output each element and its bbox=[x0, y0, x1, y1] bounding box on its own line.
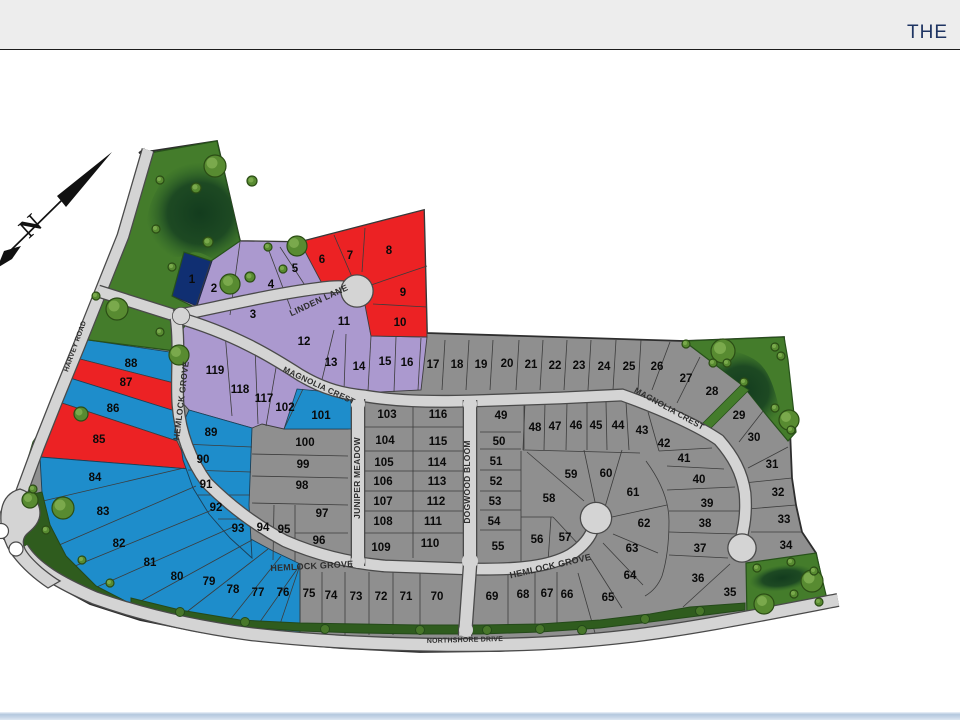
svg-text:77: 77 bbox=[252, 587, 265, 599]
svg-text:86: 86 bbox=[107, 403, 120, 415]
svg-text:10: 10 bbox=[394, 317, 407, 329]
svg-text:92: 92 bbox=[210, 502, 223, 514]
svg-text:60: 60 bbox=[600, 468, 613, 480]
svg-text:66: 66 bbox=[561, 589, 574, 601]
svg-text:42: 42 bbox=[658, 438, 671, 450]
svg-text:33: 33 bbox=[778, 514, 791, 526]
svg-text:5: 5 bbox=[292, 263, 299, 275]
svg-text:74: 74 bbox=[325, 590, 338, 602]
svg-text:21: 21 bbox=[525, 359, 538, 371]
svg-text:45: 45 bbox=[590, 420, 603, 432]
svg-text:94: 94 bbox=[257, 522, 270, 534]
svg-text:11: 11 bbox=[338, 316, 351, 328]
svg-text:32: 32 bbox=[772, 487, 785, 499]
svg-text:23: 23 bbox=[573, 360, 586, 372]
svg-text:53: 53 bbox=[489, 496, 502, 508]
svg-text:54: 54 bbox=[488, 516, 501, 528]
svg-text:114: 114 bbox=[428, 457, 447, 469]
svg-text:78: 78 bbox=[227, 584, 240, 596]
svg-text:79: 79 bbox=[203, 576, 216, 588]
svg-text:113: 113 bbox=[428, 476, 447, 488]
svg-text:115: 115 bbox=[429, 436, 448, 448]
svg-text:63: 63 bbox=[626, 543, 639, 555]
svg-text:107: 107 bbox=[373, 496, 392, 508]
svg-text:71: 71 bbox=[400, 591, 413, 603]
svg-text:117: 117 bbox=[255, 393, 274, 405]
svg-text:70: 70 bbox=[431, 591, 444, 603]
svg-text:98: 98 bbox=[296, 480, 309, 492]
svg-text:80: 80 bbox=[171, 571, 184, 583]
svg-text:89: 89 bbox=[205, 427, 218, 439]
svg-text:48: 48 bbox=[529, 422, 542, 434]
svg-text:35: 35 bbox=[724, 587, 737, 599]
svg-text:119: 119 bbox=[206, 365, 225, 377]
svg-text:72: 72 bbox=[375, 591, 388, 603]
svg-text:26: 26 bbox=[651, 361, 664, 373]
svg-text:1: 1 bbox=[189, 274, 196, 286]
svg-text:15: 15 bbox=[379, 356, 392, 368]
svg-text:87: 87 bbox=[120, 377, 133, 389]
svg-text:JUNIPER MEADOW: JUNIPER MEADOW bbox=[352, 436, 362, 518]
svg-text:39: 39 bbox=[701, 498, 714, 510]
svg-text:24: 24 bbox=[598, 361, 611, 373]
svg-text:16: 16 bbox=[401, 357, 414, 369]
svg-text:3: 3 bbox=[250, 309, 256, 321]
svg-text:22: 22 bbox=[549, 360, 562, 372]
svg-text:40: 40 bbox=[693, 474, 706, 486]
svg-text:64: 64 bbox=[624, 570, 637, 582]
svg-text:105: 105 bbox=[374, 457, 394, 469]
svg-text:96: 96 bbox=[313, 535, 326, 547]
svg-text:61: 61 bbox=[627, 487, 640, 499]
svg-text:51: 51 bbox=[490, 456, 503, 468]
svg-text:44: 44 bbox=[612, 420, 625, 432]
svg-text:7: 7 bbox=[347, 250, 353, 262]
svg-text:103: 103 bbox=[377, 409, 396, 421]
svg-text:43: 43 bbox=[636, 425, 649, 437]
svg-text:109: 109 bbox=[371, 542, 390, 554]
svg-text:100: 100 bbox=[295, 437, 314, 449]
svg-text:56: 56 bbox=[531, 534, 544, 546]
svg-text:99: 99 bbox=[297, 459, 310, 471]
svg-text:58: 58 bbox=[543, 493, 556, 505]
svg-text:47: 47 bbox=[549, 421, 562, 433]
svg-text:14: 14 bbox=[353, 361, 366, 373]
svg-text:116: 116 bbox=[429, 409, 448, 421]
svg-text:106: 106 bbox=[373, 476, 392, 488]
svg-text:112: 112 bbox=[427, 496, 446, 508]
svg-text:104: 104 bbox=[375, 435, 395, 447]
svg-text:12: 12 bbox=[298, 336, 311, 348]
svg-text:20: 20 bbox=[501, 358, 514, 370]
svg-text:83: 83 bbox=[97, 506, 110, 518]
svg-text:81: 81 bbox=[144, 557, 157, 569]
svg-text:4: 4 bbox=[268, 279, 275, 291]
svg-text:6: 6 bbox=[319, 254, 325, 266]
svg-text:2: 2 bbox=[211, 283, 217, 295]
svg-text:34: 34 bbox=[780, 540, 793, 552]
svg-text:DOGWOOD BLOOM: DOGWOOD BLOOM bbox=[462, 440, 472, 523]
svg-text:49: 49 bbox=[495, 410, 508, 422]
svg-text:59: 59 bbox=[565, 469, 578, 481]
svg-text:62: 62 bbox=[638, 518, 651, 530]
svg-text:37: 37 bbox=[694, 543, 707, 555]
svg-text:68: 68 bbox=[517, 589, 530, 601]
svg-text:19: 19 bbox=[475, 359, 488, 371]
svg-text:118: 118 bbox=[231, 384, 250, 396]
svg-text:73: 73 bbox=[350, 591, 363, 603]
svg-text:102: 102 bbox=[275, 402, 294, 414]
svg-text:57: 57 bbox=[559, 532, 572, 544]
svg-text:108: 108 bbox=[373, 516, 393, 528]
svg-text:41: 41 bbox=[678, 453, 691, 465]
svg-text:88: 88 bbox=[125, 358, 138, 370]
svg-text:N: N bbox=[13, 208, 48, 244]
svg-text:52: 52 bbox=[490, 476, 503, 488]
svg-text:31: 31 bbox=[766, 459, 779, 471]
svg-text:110: 110 bbox=[421, 538, 440, 550]
svg-text:55: 55 bbox=[492, 541, 505, 553]
svg-text:93: 93 bbox=[232, 523, 245, 535]
svg-text:91: 91 bbox=[200, 479, 213, 491]
svg-text:50: 50 bbox=[493, 436, 506, 448]
svg-text:67: 67 bbox=[541, 588, 554, 600]
svg-text:82: 82 bbox=[113, 538, 126, 550]
svg-text:8: 8 bbox=[386, 245, 393, 257]
svg-text:9: 9 bbox=[400, 287, 406, 299]
svg-text:36: 36 bbox=[692, 573, 705, 585]
svg-text:38: 38 bbox=[699, 518, 712, 530]
svg-text:101: 101 bbox=[311, 410, 331, 422]
svg-text:75: 75 bbox=[303, 588, 316, 600]
svg-text:25: 25 bbox=[623, 361, 636, 373]
svg-text:85: 85 bbox=[93, 434, 106, 446]
svg-text:17: 17 bbox=[427, 359, 440, 371]
svg-text:13: 13 bbox=[325, 357, 338, 369]
svg-text:76: 76 bbox=[277, 587, 290, 599]
svg-text:69: 69 bbox=[486, 591, 499, 603]
svg-text:95: 95 bbox=[278, 524, 291, 536]
svg-text:97: 97 bbox=[316, 508, 329, 520]
svg-text:46: 46 bbox=[570, 420, 583, 432]
svg-text:18: 18 bbox=[451, 359, 464, 371]
svg-text:65: 65 bbox=[602, 592, 615, 604]
svg-text:27: 27 bbox=[680, 373, 693, 385]
svg-text:30: 30 bbox=[748, 432, 761, 444]
svg-text:111: 111 bbox=[424, 516, 443, 528]
svg-text:29: 29 bbox=[733, 410, 746, 422]
svg-text:84: 84 bbox=[89, 472, 102, 484]
svg-text:28: 28 bbox=[706, 386, 719, 398]
svg-text:90: 90 bbox=[197, 454, 210, 466]
